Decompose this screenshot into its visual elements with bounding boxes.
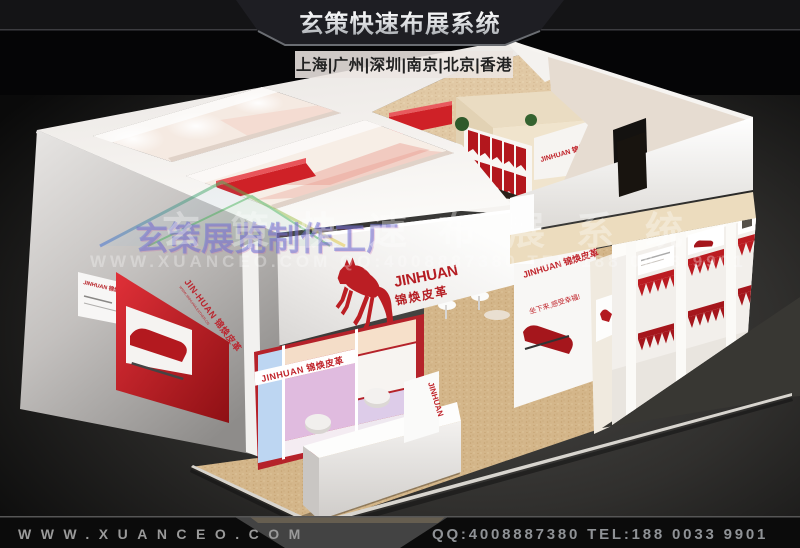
svg-text:WWW.XUANCEO.COM QQ:4008887380: WWW.XUANCEO.COM QQ:4008887380 TEL:188 00… bbox=[90, 252, 747, 271]
svg-text:玄策快速布展系统: 玄策快速布展系统 bbox=[162, 211, 714, 253]
svg-text:WWW.XUANCEO.COM: WWW.XUANCEO.COM bbox=[18, 526, 310, 542]
svg-text:QQ:4008887380 TEL:188 0033 99: QQ:4008887380 TEL:188 0033 9901 bbox=[432, 526, 768, 543]
svg-text:玄策快速布展系统: 玄策快速布展系统 bbox=[299, 10, 501, 38]
svg-text:上海|广州|深圳|南京|北京|香港: 上海|广州|深圳|南京|北京|香港 bbox=[296, 55, 512, 74]
